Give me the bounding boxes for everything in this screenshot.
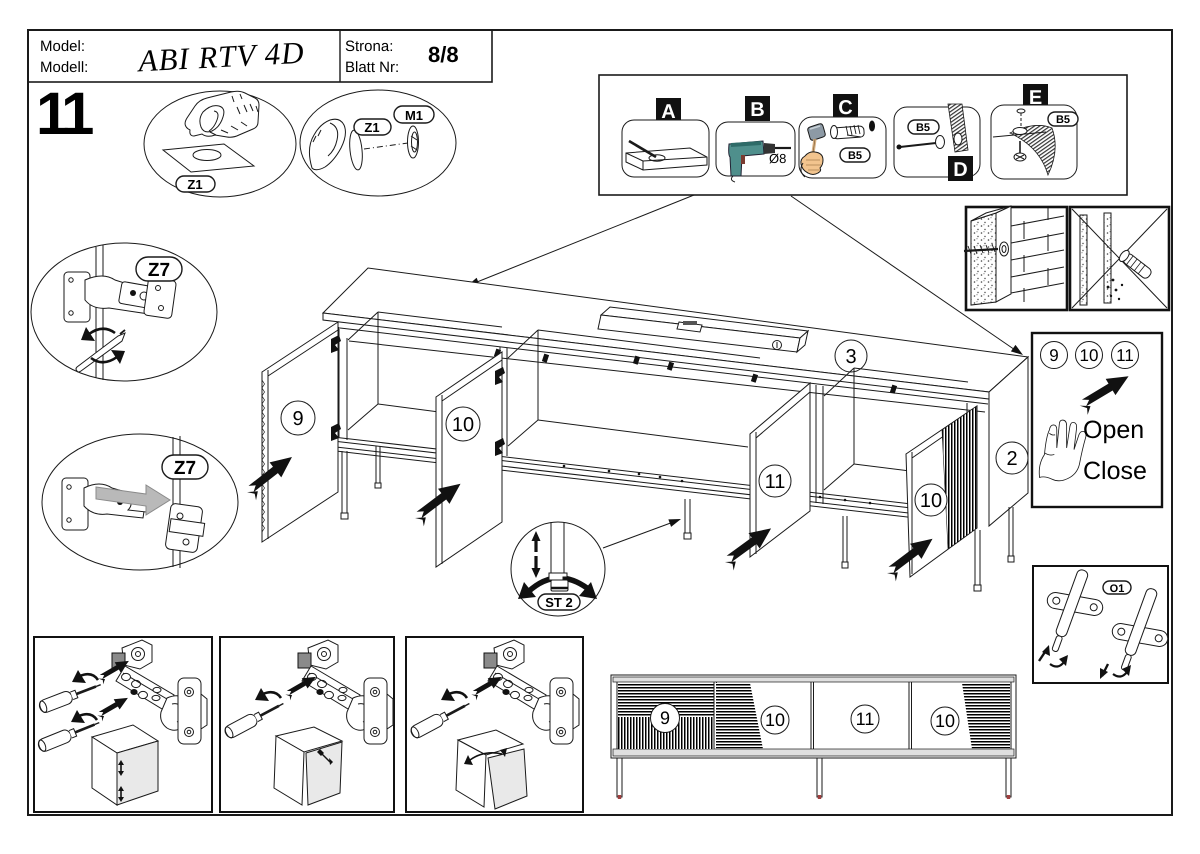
svg-text:11: 11 — [1116, 346, 1134, 365]
svg-text:O1: O1 — [1110, 583, 1125, 595]
svg-text:C: C — [838, 97, 852, 119]
svg-text:Z1: Z1 — [187, 177, 202, 192]
svg-text:Close: Close — [1083, 457, 1147, 485]
svg-text:B5: B5 — [916, 122, 930, 134]
svg-text:Ø8: Ø8 — [769, 151, 786, 166]
svg-text:B5: B5 — [1056, 114, 1070, 126]
svg-text:B5: B5 — [848, 150, 862, 162]
svg-text:9: 9 — [292, 408, 303, 430]
svg-text:Open: Open — [1083, 416, 1144, 444]
svg-text:9: 9 — [1049, 346, 1058, 365]
svg-text:9: 9 — [660, 708, 670, 728]
svg-text:2: 2 — [1006, 448, 1017, 470]
svg-text:Strona:: Strona: — [345, 38, 393, 55]
svg-text:Z7: Z7 — [148, 260, 170, 281]
svg-text:3: 3 — [845, 346, 856, 368]
svg-text:11: 11 — [765, 471, 786, 493]
svg-text:Z1: Z1 — [364, 120, 379, 135]
svg-text:Blatt Nr:: Blatt Nr: — [345, 59, 399, 76]
svg-text:10: 10 — [935, 711, 955, 731]
svg-text:ST 2: ST 2 — [545, 595, 572, 610]
svg-text:Z7: Z7 — [174, 458, 196, 479]
svg-text:10: 10 — [765, 710, 785, 730]
svg-text:10: 10 — [452, 414, 474, 436]
svg-text:Model:: Model: — [40, 38, 85, 55]
svg-text:M1: M1 — [405, 108, 423, 123]
svg-text:10: 10 — [920, 490, 942, 512]
svg-text:10: 10 — [1080, 346, 1099, 365]
svg-text:8/8: 8/8 — [428, 42, 459, 67]
svg-text:B: B — [750, 99, 764, 121]
svg-text:11: 11 — [856, 709, 875, 729]
svg-text:D: D — [953, 159, 967, 181]
svg-text:11: 11 — [36, 80, 93, 147]
svg-text:Modell:: Modell: — [40, 59, 88, 76]
